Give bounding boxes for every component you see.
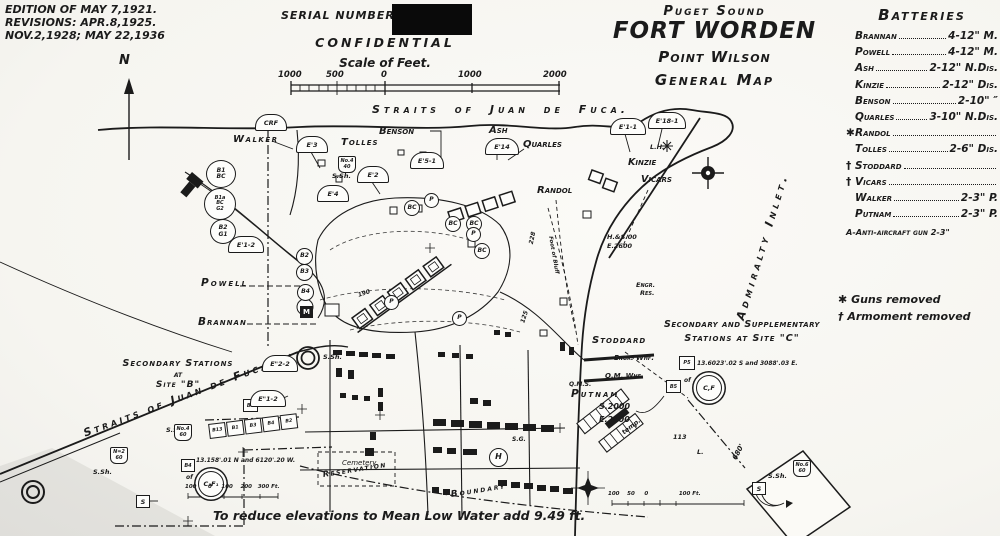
coord-s2000: S.2000	[599, 403, 630, 411]
battery-row-walker: Walker2-3" P.	[846, 192, 998, 208]
battery-row-randol: ✱Randol	[846, 127, 998, 143]
station-circle-b2-g1: B2 G1	[210, 219, 236, 244]
row-armament: 2-6" Dis.	[950, 143, 998, 155]
water-label-straits-top: Straits of Juan de Fuca.	[372, 104, 629, 116]
site-c-coordinates: 13.6023'.02 S and 3088'.03 E.	[697, 361, 798, 367]
battery-row-quarles: Quarles3-10" N.Dis.	[846, 111, 998, 127]
cf-label: C,F	[703, 385, 715, 392]
label-battery-brannan: Brannan	[198, 317, 247, 328]
station-label: P	[389, 299, 393, 305]
s-label: S	[141, 498, 146, 506]
station-label: E'3	[307, 141, 318, 149]
station-label: E'14	[494, 143, 509, 151]
station-crf: CRF	[255, 114, 287, 131]
mini-scale-b-labels: 100 0 100 200 300 Ft.	[185, 485, 280, 491]
row-name: Putnam	[855, 208, 891, 220]
site-b-station: B13	[208, 422, 227, 439]
row-name: Vicars	[855, 176, 887, 188]
marker-ssh-circle	[297, 347, 319, 369]
station-e1-1: E'1-1	[610, 118, 646, 135]
station-circle-b3s: B3	[296, 264, 313, 281]
h-label: H	[495, 453, 502, 461]
station-label: E'4	[328, 190, 339, 198]
label-l: L.	[697, 449, 704, 456]
site-b-station: B3	[244, 418, 263, 435]
site-c-square-b5: B5	[666, 380, 681, 393]
row-name: Kinzie	[855, 79, 884, 91]
label-battery-kinzie: Kinzie	[628, 158, 656, 168]
station-label: E'1-1	[619, 123, 637, 131]
station-box-s-2: S	[752, 482, 766, 495]
shield-num: 60	[799, 469, 806, 474]
battery-row-ash: Ash2-12" N.Dis.	[846, 62, 998, 78]
coord-e2600: E.2600	[607, 243, 632, 250]
station-circle-b1a-bc-g2: B1a BC G2	[204, 188, 236, 220]
station-label: G2	[216, 207, 224, 212]
site-b-of: of	[186, 475, 193, 481]
confidential-stamp: CONFIDENTIAL	[300, 36, 470, 49]
station-label: B4	[301, 289, 310, 295]
station-label: BC	[408, 205, 417, 211]
edition-line-1: EDITION OF MAY 7,1921.	[5, 4, 157, 16]
station-e2-2-siteb: E"2-2	[262, 355, 298, 372]
row-name: Tolles	[855, 143, 887, 155]
station-box-s-1: S	[136, 495, 150, 508]
site-c-square-p5: P5	[679, 356, 695, 370]
label-engineer-reservation-1: Engr.	[636, 282, 655, 289]
station-label: E'5-1	[418, 157, 436, 165]
scale-tick-500: 500	[326, 71, 344, 80]
station-label: E'2	[368, 171, 379, 179]
shield-no4-40: No.4 40	[338, 156, 356, 173]
label-battery-walker: Walker	[233, 135, 279, 146]
row-name: Stoddard	[855, 160, 902, 172]
aa-gun-note: A-Anti-aircraft gun 2-3"	[846, 227, 998, 237]
buildings	[333, 330, 799, 503]
shield-num: 40	[344, 165, 351, 170]
station-circle-p-3: P	[452, 311, 467, 326]
row-marker: †	[846, 176, 855, 188]
row-armament: 2-3" P.	[961, 192, 998, 204]
row-name: Benson	[855, 95, 891, 107]
station-circle-b1-bc: B1 BC	[206, 160, 236, 188]
battery-row-kinzie: Kinzie2-12" Dis.	[846, 79, 998, 95]
batteries-panel: Batteries Brannan4-12" M. Powell4-12" M.…	[846, 6, 998, 237]
station-label: P	[429, 197, 433, 203]
station-label: BC	[217, 174, 226, 180]
site-b-title-2: at	[112, 371, 244, 379]
fort-worden-map-sheet: EDITION OF MAY 7,1921. REVISIONS: APR.8,…	[0, 0, 1000, 536]
row-armament: 2-12" N.Dis.	[929, 62, 998, 74]
site-c-cf-circle: C,F	[696, 375, 722, 401]
station-label: E'1-2	[237, 241, 255, 249]
battery-row-brannan: Brannan4-12" M.	[846, 30, 998, 46]
shield-n2-60: N=2 60	[110, 447, 128, 464]
label-ssh-1: S.Sh.	[332, 173, 351, 180]
battery-row-vicars: †Vicars	[846, 176, 998, 192]
station-circle-p-4: P	[466, 227, 481, 242]
row-name: Randol	[855, 127, 891, 139]
sq-label: P5	[683, 360, 690, 366]
label-ssh-2: S.Sh.	[323, 354, 342, 361]
station-circle-b4s: B4	[297, 284, 314, 301]
station-label: P	[471, 231, 475, 237]
station-circle-bc-2: BC	[445, 216, 461, 232]
site-c-title-2: Stations at Site "C"	[642, 334, 842, 344]
mini-scale-site-c	[612, 500, 744, 506]
title-point: Point Wilson	[612, 50, 817, 66]
station-e3: E'3	[296, 136, 328, 153]
mini-scale-site-b	[188, 493, 278, 499]
site-c-title-1: Secondary and Supplementary	[642, 320, 842, 330]
edition-line-2: REVISIONS: APR.8,1925.	[5, 17, 156, 29]
station-label: E"1-2	[258, 395, 278, 403]
station-e1-2-siteb: E"1-2	[250, 390, 286, 407]
s-label: S	[757, 485, 762, 493]
site-b-station: B1	[226, 420, 245, 437]
label-battery-tolles: Tolles	[341, 138, 379, 149]
edition-line-3: NOV.2,1928; MAY 22,1936	[5, 30, 165, 42]
station-e5-1: E'5-1	[410, 152, 444, 169]
row-marker: ✱	[846, 127, 855, 139]
title-map-type: General Map	[612, 73, 817, 89]
station-label: E"2-2	[270, 360, 290, 368]
north-label: N	[119, 54, 130, 68]
station-circle-b2s: B2	[296, 248, 313, 265]
station-circle-p-1: P	[424, 193, 439, 208]
station-e18-1: E'18-1	[648, 112, 686, 129]
row-armament: 4-12" M.	[948, 46, 998, 58]
legend-guns-removed: ✱ Guns removed	[838, 293, 941, 306]
label-113: 113	[673, 434, 687, 441]
row-armament: 2-10" ″	[958, 95, 998, 107]
label-battery-stoddard: Stoddard	[592, 336, 646, 347]
scale-tick-2000: 2000	[543, 71, 567, 80]
site-b-coordinates: 13.158'.01 N and 6120'.20 W.	[196, 458, 295, 464]
site-b-title-1: Secondary Stations	[112, 359, 244, 369]
title-region: Puget Sound	[612, 5, 817, 19]
label-battery-vicars: Vicars	[641, 175, 672, 185]
note-reduce-elevations: To reduce elevations to Mean Low Water a…	[213, 509, 585, 522]
battery-row-powell: Powell4-12" M.	[846, 46, 998, 62]
row-name: Ash	[855, 62, 874, 74]
row-name: Quarles	[855, 111, 894, 123]
legend-guns-text: Guns removed	[851, 293, 940, 306]
station-label: BC	[478, 248, 487, 254]
station-e14: E'14	[485, 138, 519, 155]
scale-tick-1000R: 1000	[458, 71, 482, 80]
label-battery-putnam: Putnam	[571, 389, 619, 400]
label-battery-powell: Powell	[201, 278, 248, 289]
title-fort: FORT WORDEN	[612, 19, 817, 43]
coord-e2000: E.2000	[599, 416, 630, 424]
label-qm-wharf: Q.M. Whf.	[605, 373, 644, 380]
legend-armament-removed: † Armoment removed	[838, 310, 971, 323]
row-marker: †	[846, 160, 855, 172]
label-engineer-reservation-2: Res.	[640, 290, 655, 297]
sq-label: B4	[184, 463, 191, 469]
station-label: BC	[449, 221, 458, 227]
site-b-station: B4	[262, 415, 281, 432]
label-battery-randol: Randol	[537, 186, 572, 197]
scale-tick-0: 0	[381, 71, 387, 80]
battery-row-putnam: Putnam2-3" P.	[846, 208, 998, 224]
row-armament: 3-10" N.Dis.	[929, 111, 998, 123]
sq-label: B5	[670, 384, 677, 390]
trail-site-b	[0, 262, 232, 352]
scale-title: Scale of Feet.	[300, 57, 470, 70]
site-b-title-3: Site "B"	[112, 381, 244, 390]
row-name: Powell	[855, 46, 890, 58]
scale-tick-1000L: 1000	[278, 71, 302, 80]
site-b-station: B2	[280, 413, 299, 430]
label-engineer-wharf: Engr. Whf.	[614, 355, 654, 362]
shield-no4-60: No.4 60	[174, 424, 192, 441]
shield-no6-60: No.6 60	[793, 460, 811, 477]
site-b-square: B4	[181, 459, 195, 472]
station-circle-bc-1: BC	[404, 200, 420, 216]
mini-scale-c-labels: 100 50 0 100 Ft.	[608, 492, 701, 498]
station-circle-p-2: P	[384, 295, 399, 310]
station-label: B2	[300, 253, 309, 259]
serial-number-redaction	[392, 4, 472, 35]
station-circle-bc-4: BC	[474, 243, 490, 259]
row-armament: 2-12" Dis.	[942, 79, 998, 91]
label-battery-benson: Benson	[379, 127, 414, 138]
site-c-of: of	[684, 378, 691, 384]
row-name: Walker	[855, 192, 892, 204]
label-sg: S.G.	[512, 437, 526, 443]
legend-armament-text: Armoment removed	[847, 310, 970, 323]
station-label: B3	[300, 269, 309, 275]
scale-bar	[291, 81, 560, 95]
station-label: P	[457, 315, 461, 321]
batteries-title: Batteries	[846, 6, 998, 24]
magazine-square: M	[300, 306, 313, 318]
label-qms: Q.M.S.	[569, 382, 591, 388]
battery-row-benson: Benson2-10" ″	[846, 95, 998, 111]
battery-row-tolles: Tolles2-6" Dis.	[846, 143, 998, 159]
shield-num: 60	[116, 456, 123, 461]
station-label: G1	[218, 232, 227, 238]
station-label: CRF	[264, 119, 278, 127]
station-e2: E'2	[357, 166, 389, 183]
label-battery-ash: Ash	[489, 126, 508, 137]
m-label: M	[303, 308, 310, 316]
asterisk-icon: ✱	[838, 293, 847, 306]
row-name: Brannan	[855, 30, 897, 42]
station-label: E'18-1	[656, 117, 679, 125]
aa-gun-symbol	[692, 157, 724, 189]
row-armament: 2-3" P.	[961, 208, 998, 220]
north-arrow	[124, 78, 134, 160]
station-e4: E'4	[317, 185, 349, 202]
label-battery-quarles: Quarles	[523, 140, 562, 151]
coord-hs00: H.&S.00	[607, 234, 637, 241]
shield-num: 60	[180, 433, 187, 438]
row-armament: 4-12" M.	[948, 30, 998, 42]
marker-circled-h: H	[489, 448, 508, 467]
label-ssh-4: S.Sh.	[93, 469, 112, 476]
serial-number-label: SERIAL NUMBER	[281, 10, 395, 22]
label-ssh-5: S.Sh.	[768, 473, 787, 480]
label-lighthouse: L.H.	[650, 144, 665, 151]
battery-row-stoddard: †Stoddard	[846, 160, 998, 176]
